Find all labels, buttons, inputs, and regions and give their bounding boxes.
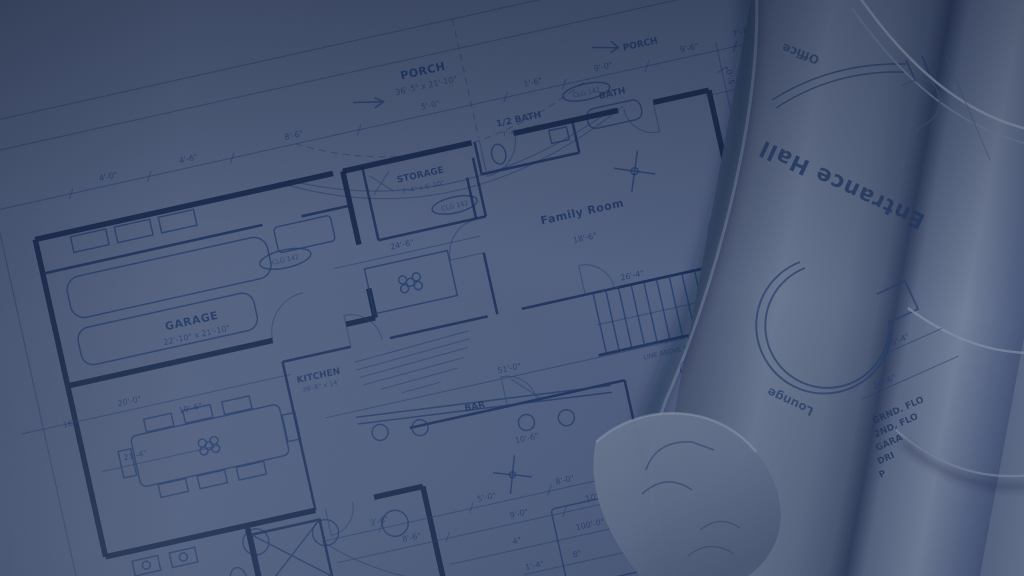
- photo-vignette-overlay: [0, 0, 1024, 576]
- blueprint-photo: 4'-0" 4'-6" 8'-6" 5'-0" 1'-6" 9'-0" 9'-6…: [0, 0, 1024, 576]
